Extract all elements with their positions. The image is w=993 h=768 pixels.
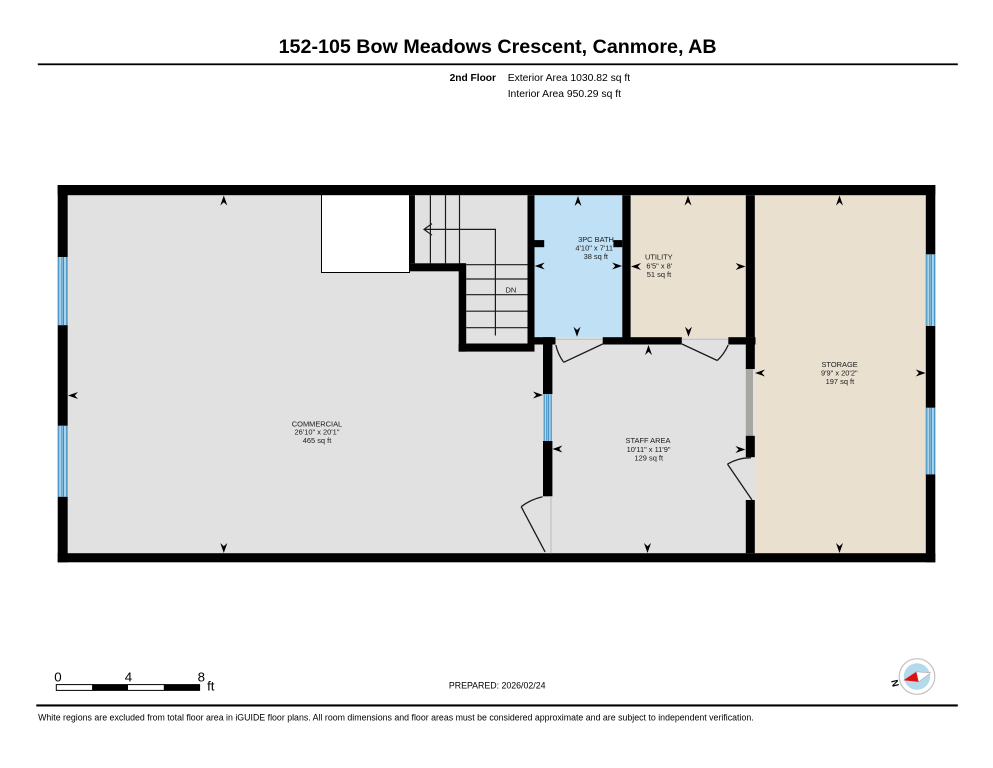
svg-text:8: 8 [198, 669, 205, 684]
svg-text:38 sq ft: 38 sq ft [584, 252, 609, 261]
svg-text:152-105 Bow Meadows Crescent,: 152-105 Bow Meadows Crescent, Canmore, A… [279, 36, 717, 58]
svg-text:Exterior Area 1030.82 sq ft: Exterior Area 1030.82 sq ft [508, 73, 631, 84]
svg-text:UTILITY: UTILITY [645, 252, 673, 261]
svg-text:Interior Area 950.29 sq ft: Interior Area 950.29 sq ft [508, 89, 621, 100]
svg-text:0: 0 [54, 669, 61, 684]
svg-text:2nd Floor: 2nd Floor [450, 73, 496, 84]
svg-text:129 sq ft: 129 sq ft [635, 454, 664, 463]
svg-text:STAFF AREA: STAFF AREA [626, 436, 671, 445]
svg-text:9'9" x 20'2": 9'9" x 20'2" [821, 368, 858, 377]
svg-text:PREPARED: 2026/02/24: PREPARED: 2026/02/24 [449, 681, 546, 691]
svg-text:ft: ft [207, 678, 215, 693]
svg-text:51 sq ft: 51 sq ft [647, 270, 672, 279]
svg-text:DN: DN [506, 286, 517, 295]
svg-text:197 sq ft: 197 sq ft [826, 377, 855, 386]
svg-text:4: 4 [125, 669, 132, 684]
svg-text:465 sq ft: 465 sq ft [303, 436, 332, 445]
svg-text:White regions are excluded fro: White regions are excluded from total fl… [38, 713, 754, 723]
